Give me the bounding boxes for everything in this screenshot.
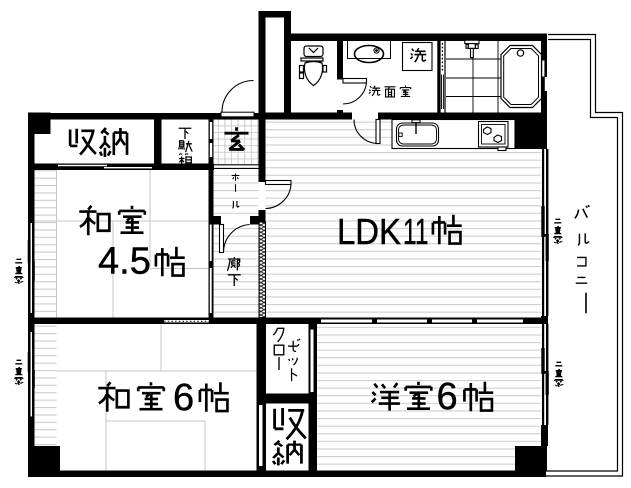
svg-text:11: 11 [403, 211, 429, 252]
svg-text:4.5: 4.5 [98, 241, 151, 283]
svg-text:6: 6 [173, 377, 194, 419]
svg-text:LDK: LDK [337, 211, 401, 252]
svg-text:6: 6 [437, 376, 458, 418]
